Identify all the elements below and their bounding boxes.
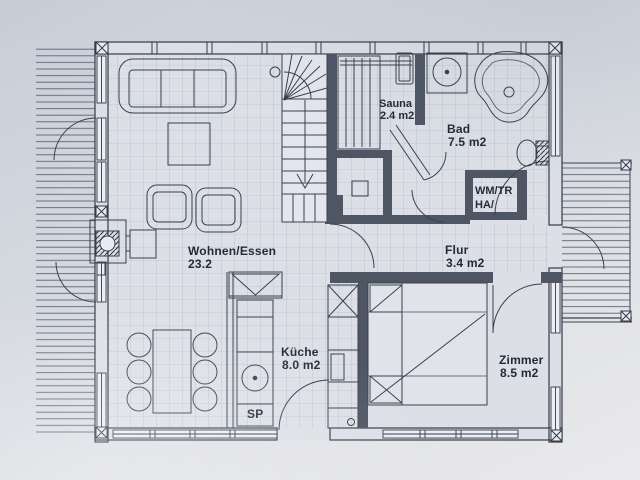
- post-icon: [621, 311, 631, 321]
- right-terrace-decking: [562, 163, 632, 322]
- label-zimmer: Zimmer: [499, 353, 544, 367]
- post-icon: [96, 427, 107, 438]
- post-icon: [551, 430, 562, 441]
- double-bed: [368, 283, 487, 405]
- label-wohnen-area: 23.2: [188, 257, 212, 271]
- post-icon: [96, 42, 108, 54]
- label-sauna: Sauna: [379, 98, 413, 110]
- label-zimmer-area: 8.5 m2: [500, 366, 539, 380]
- post-icon: [549, 42, 561, 54]
- label-utility-2: HA/: [475, 199, 494, 211]
- label-flur: Flur: [445, 243, 469, 257]
- label-bad: Bad: [447, 122, 470, 136]
- label-bad-area: 7.5 m2: [448, 135, 487, 149]
- label-utility-1: WM/TR: [475, 185, 512, 197]
- floor-plan-photo: Wohnen/Essen 23.2 Sauna 2.4 m2 Bad 7.5 m…: [0, 0, 640, 480]
- post-icon: [621, 160, 631, 170]
- label-kueche: Küche: [281, 345, 319, 359]
- label-sauna-area: 2.4 m2: [380, 110, 414, 122]
- floor-plan-drawing: Wohnen/Essen 23.2 Sauna 2.4 m2 Bad 7.5 m…: [0, 0, 640, 480]
- post-icon: [96, 206, 107, 217]
- left-terrace-decking: [36, 47, 95, 437]
- label-kueche-area: 8.0 m2: [282, 358, 321, 372]
- label-sink: SP: [247, 407, 263, 421]
- bedroom-furniture: [368, 283, 487, 405]
- label-flur-area: 3.4 m2: [446, 256, 485, 270]
- label-wohnen-essen: Wohnen/Essen: [188, 244, 276, 258]
